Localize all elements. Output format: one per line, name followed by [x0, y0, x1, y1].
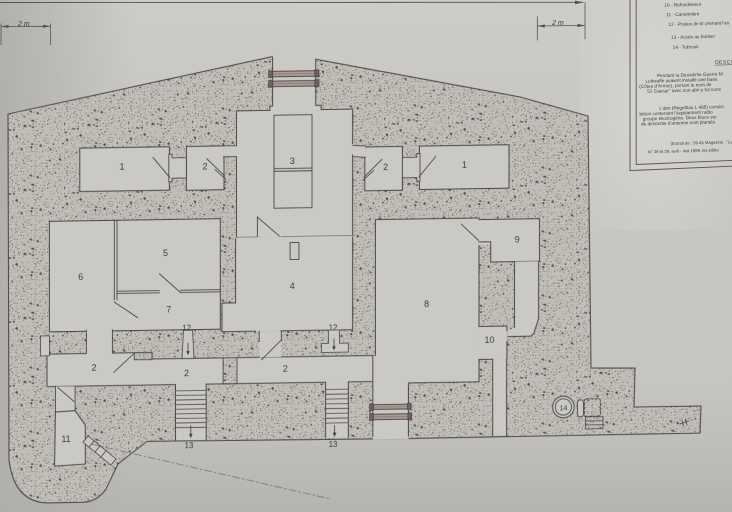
svg-text:2: 2: [383, 162, 388, 172]
svg-text:11 - Canonnière: 11 - Canonnière: [666, 11, 700, 17]
svg-text:1: 1: [119, 162, 124, 172]
svg-text:2: 2: [283, 364, 288, 374]
svg-text:13: 13: [329, 440, 338, 449]
svg-text:3: 3: [290, 156, 295, 166]
svg-text:10: 10: [484, 335, 494, 345]
svg-text:1: 1: [462, 160, 467, 170]
svg-text:2 m: 2 m: [551, 20, 564, 27]
svg-text:12: 12: [182, 324, 191, 333]
svg-text:2: 2: [202, 161, 207, 171]
svg-text:11: 11: [61, 434, 70, 444]
svg-text:13: 13: [185, 441, 194, 450]
svg-text:8: 8: [424, 299, 429, 309]
svg-text:9: 9: [515, 234, 520, 244]
svg-text:DESCRI: DESCRI: [715, 59, 732, 66]
svg-text:2: 2: [184, 368, 189, 378]
svg-text:7: 7: [166, 304, 171, 314]
svg-text:14: 14: [560, 405, 568, 412]
svg-text:6: 6: [78, 272, 83, 282]
svg-text:4: 4: [290, 281, 295, 291]
svg-text:2: 2: [91, 362, 96, 372]
svg-text:12: 12: [329, 323, 338, 332]
svg-text:5: 5: [163, 248, 168, 258]
svg-text:2 m: 2 m: [17, 21, 30, 28]
svg-text:10 - Refroidisseur: 10 - Refroidisseur: [664, 2, 702, 8]
svg-text:14 - Tobrouk: 14 - Tobrouk: [673, 44, 700, 50]
